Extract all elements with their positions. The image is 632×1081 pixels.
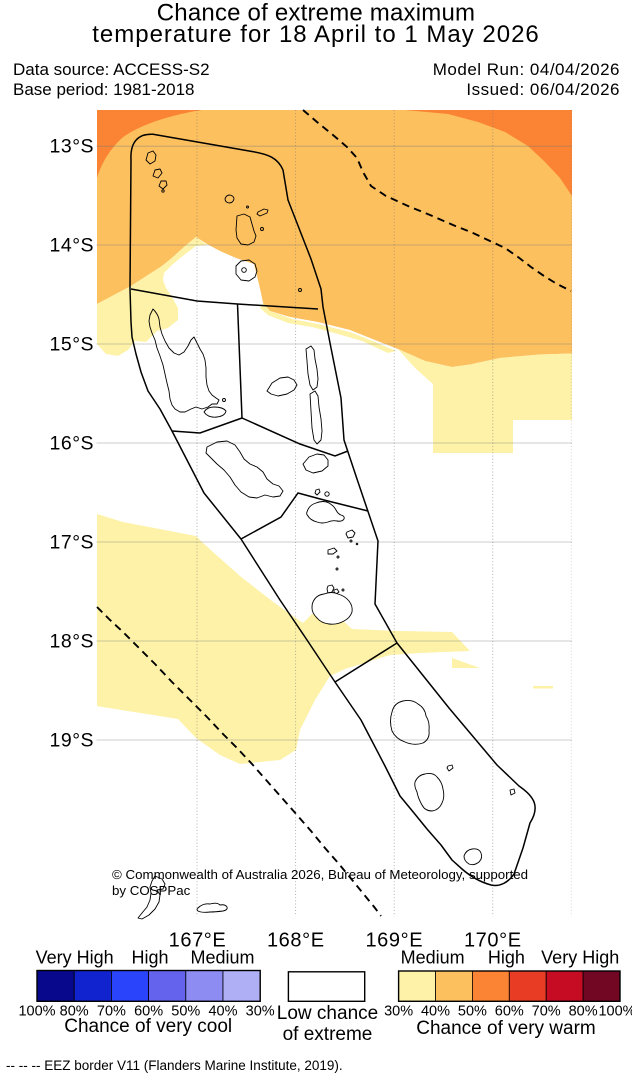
svg-text:168°E: 168°E: [267, 930, 325, 952]
svg-text:Issued: 06/04/2026: Issued: 06/04/2026: [466, 80, 620, 99]
svg-text:100%: 100%: [18, 1004, 55, 1020]
svg-text:17°S: 17°S: [50, 531, 95, 553]
svg-text:Very High: Very High: [541, 948, 619, 968]
svg-text:Low chance: Low chance: [277, 1003, 378, 1024]
svg-text:16°S: 16°S: [50, 432, 95, 454]
svg-text:Very High: Very High: [36, 948, 114, 968]
svg-text:100%: 100%: [598, 1004, 632, 1020]
svg-text:© Commonwealth of Australia 20: © Commonwealth of Australia 2026, Bureau…: [112, 867, 528, 882]
svg-text:Base period: 1981-2018: Base period: 1981-2018: [13, 80, 194, 99]
svg-text:30%: 30%: [246, 1004, 275, 1020]
svg-text:Medium: Medium: [401, 948, 465, 968]
svg-text:Chance of very cool: Chance of very cool: [64, 1016, 232, 1037]
svg-text:14°S: 14°S: [50, 234, 95, 256]
svg-text:Model Run: 04/04/2026: Model Run: 04/04/2026: [433, 60, 620, 79]
svg-text:13°S: 13°S: [50, 136, 95, 158]
svg-text:15°S: 15°S: [50, 333, 95, 355]
svg-text:-- -- -- EEZ border V11 (Fla: -- -- -- EEZ border V11 (Flanders Marine…: [6, 1058, 343, 1073]
svg-text:of extreme: of extreme: [283, 1024, 373, 1045]
svg-text:by COSPPac: by COSPPac: [112, 883, 191, 898]
svg-text:Medium: Medium: [190, 948, 254, 968]
svg-text:Chance of very warm: Chance of very warm: [416, 1018, 596, 1039]
svg-text:30%: 30%: [384, 1004, 413, 1020]
svg-text:temperature for 18 April to 1: temperature for 18 April to 1 May 2026: [92, 21, 540, 48]
svg-text:18°S: 18°S: [50, 630, 95, 652]
svg-text:High: High: [131, 948, 168, 968]
svg-text:Data source: ACCESS-S2: Data source: ACCESS-S2: [13, 60, 210, 79]
svg-text:High: High: [488, 948, 525, 968]
svg-text:19°S: 19°S: [50, 729, 95, 751]
